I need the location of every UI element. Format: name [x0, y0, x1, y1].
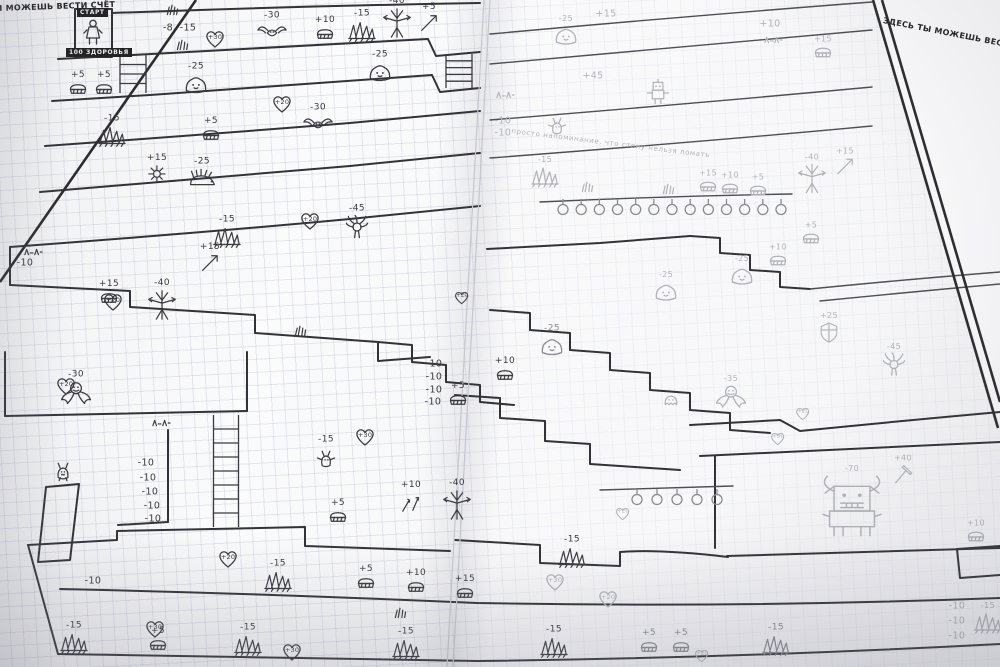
- notebook-photo: -8-15+30-30+10-15-40+5+5+5-25+20-25-15+5…: [0, 0, 1000, 667]
- health-badge: 100 ЗДОРОВЬЯ: [66, 48, 132, 57]
- start-badge: СТАРТ: [77, 8, 108, 17]
- level-walls: [0, 0, 1000, 667]
